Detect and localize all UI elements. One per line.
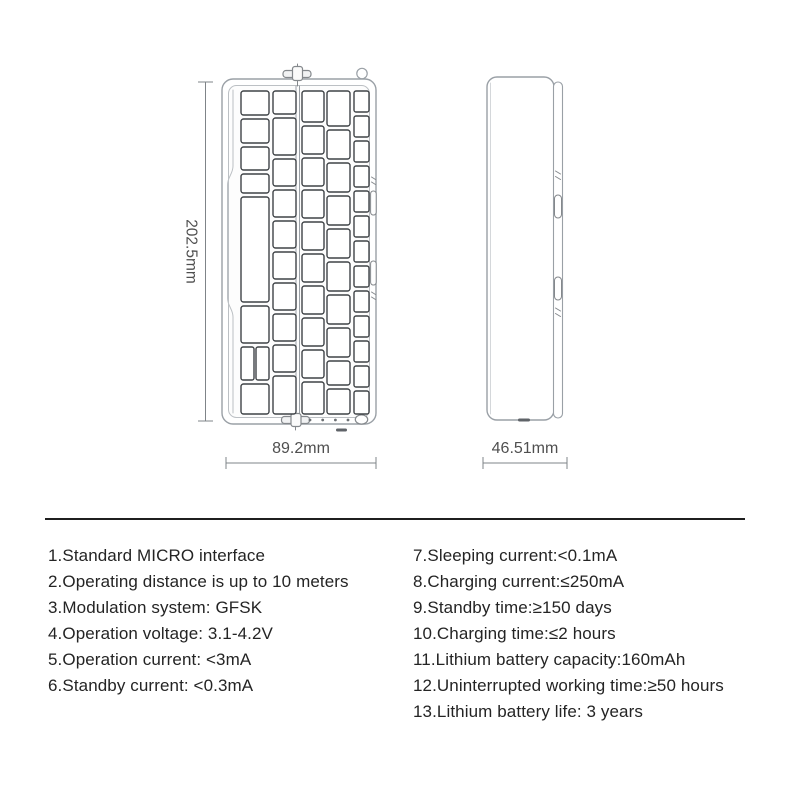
spec-item-7: 7.Sleeping current:<0.1mA [413,543,724,569]
rubber-foot [336,429,347,432]
front-width-dimension-label: 89.2mm [272,440,330,457]
spec-sheet: 202.5mm 89.2mm 46.51mm 1.Standard MICRO … [0,0,790,790]
spec-item-2: 2.Operating distance is up to 10 meters [48,569,349,595]
rubber-foot-side [518,419,530,422]
spacebar-key [241,197,269,302]
spec-item-12: 12.Uninterrupted working time:≥50 hours [413,673,724,699]
spec-list-left: 1.Standard MICRO interface 2.Operating d… [48,543,349,699]
height-dimension-label: 202.5mm [183,219,200,284]
spec-item-3: 3.Modulation system: GFSK [48,595,349,621]
spec-item-11: 11.Lithium battery capacity:160mAh [413,647,724,673]
spec-item-10: 10.Charging time:≤2 hours [413,621,724,647]
side-width-dimension-label: 46.51mm [492,440,559,457]
spec-item-6: 6.Standby current: <0.3mA [48,673,349,699]
section-divider [45,518,745,520]
dimension-width-front [226,457,376,469]
keyboard-side-view [487,77,563,422]
spec-list-right: 7.Sleeping current:<0.1mA 8.Charging cur… [413,543,724,725]
keyboard-front-view [222,64,376,432]
dimension-width-side [483,457,567,469]
spec-item-5: 5.Operation current: <3mA [48,647,349,673]
technical-drawing: 202.5mm 89.2mm 46.51mm [0,0,790,505]
spec-item-8: 8.Charging current:≤250mA [413,569,724,595]
spec-item-13: 13.Lithium battery life: 3 years [413,699,724,725]
power-button [355,415,367,424]
corner-screw-icon [357,68,367,78]
spec-item-4: 4.Operation voltage: 3.1-4.2V [48,621,349,647]
spec-item-9: 9.Standby time:≥150 days [413,595,724,621]
spec-item-1: 1.Standard MICRO interface [48,543,349,569]
